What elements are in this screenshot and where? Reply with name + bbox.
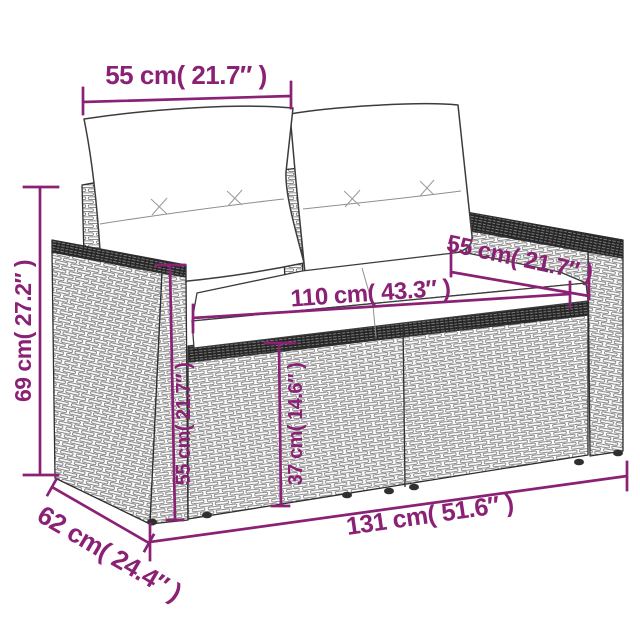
diagram-canvas: 55 cm( 21.7″ ) 69 cm( 27.2″ ) 55 cm( 21.… [0, 0, 640, 640]
sofa-dimension-diagram: 55 cm( 21.7″ ) 69 cm( 27.2″ ) 55 cm( 21.… [0, 0, 640, 640]
sofa-illustration [52, 104, 623, 526]
dim-height-label: 69 cm( 27.2″ ) [10, 260, 36, 402]
back-cushion-right [290, 104, 472, 273]
left-armrest-outer-face [52, 252, 162, 524]
dim-seat-height-label: 37 cm( 14.6″ ) [285, 363, 307, 486]
dim-total-width-label: 131 cm( 51.6″ ) [344, 489, 515, 541]
dim-arm-height-label: 55 cm( 21.7″ ) [173, 363, 195, 486]
dim-height: 69 cm( 27.2″ ) [10, 187, 58, 475]
right-armrest-outer-face [588, 252, 623, 456]
dim-back-width-label: 55 cm( 21.7″ ) [105, 60, 267, 90]
